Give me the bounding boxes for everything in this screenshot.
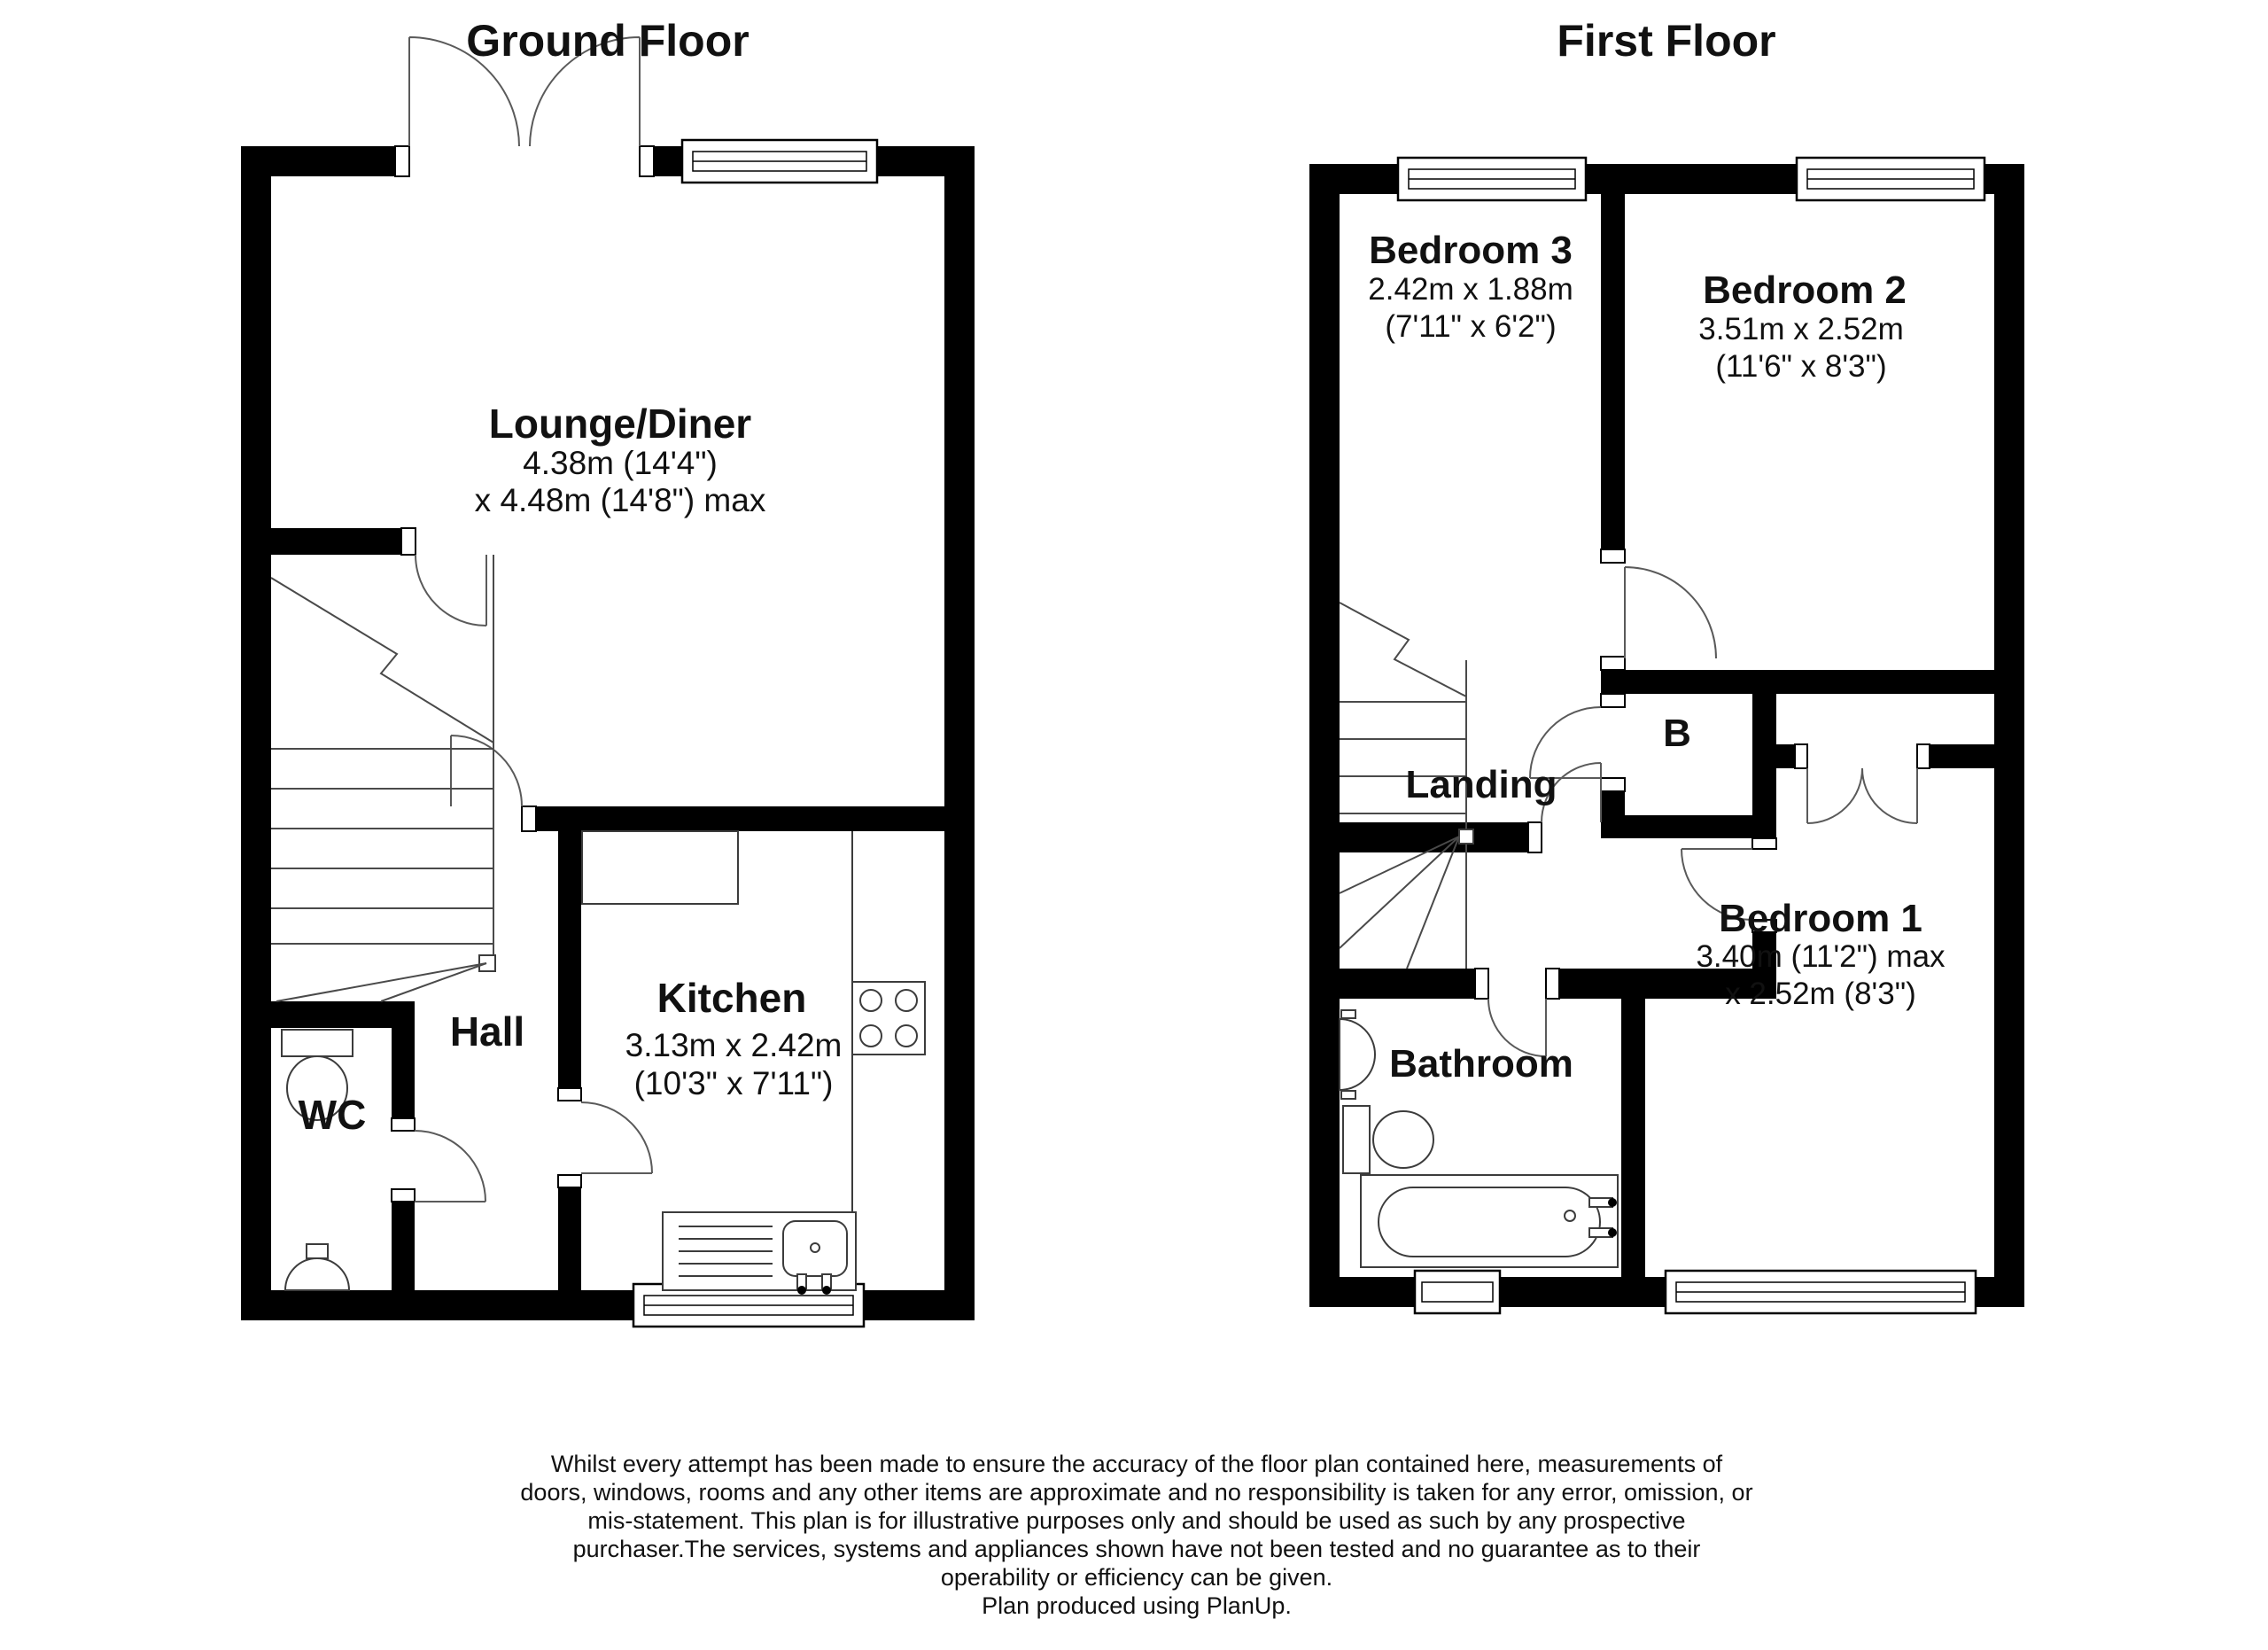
bathroom-basin-icon <box>1340 1010 1375 1099</box>
lounge-dim1: 4.38m (14'4") <box>523 445 718 482</box>
bedroom3-dim1: 2.42m x 1.88m <box>1368 272 1573 307</box>
lounge-label: Lounge/Diner <box>489 400 751 448</box>
kitchen-sink-icon <box>663 1212 856 1295</box>
wardrobe-double-door-icon <box>1807 768 1917 823</box>
lounge-dim2: x 4.48m (14'8") max <box>475 482 766 519</box>
kitchen-label: Kitchen <box>657 974 807 1022</box>
kitchen-dim1: 3.13m x 2.42m <box>625 1027 843 1064</box>
bedroom1-dim2: x 2.52m (8'3") <box>1725 977 1916 1012</box>
bedroom1-label: Bedroom 1 <box>1719 897 1922 941</box>
bedroom3-dim2: (7'11" x 6'2") <box>1385 309 1556 345</box>
bathroom-window-icon <box>1415 1271 1500 1313</box>
bathroom-bath-icon <box>1361 1175 1618 1267</box>
bedroom2-dim2: (11'6" x 8'3") <box>1715 349 1886 385</box>
kitchen-lounge-door-icon <box>451 735 522 806</box>
bedroom1-window-icon <box>1666 1271 1976 1313</box>
first-floor-title: First Floor <box>1557 15 1775 66</box>
kitchen-dim2: (10'3" x 7'11") <box>634 1065 834 1102</box>
bedroom2-window-icon <box>1797 158 1984 200</box>
wc-label: WC <box>299 1091 367 1139</box>
bedroom3-label: Bedroom 3 <box>1369 229 1573 273</box>
disclaimer-line: mis-statement. This plan is for illustra… <box>251 1506 2023 1535</box>
bedroom3-window-icon <box>1398 158 1586 200</box>
kitchen-unit-icon <box>582 831 852 1212</box>
landing-label: Landing <box>1405 763 1557 807</box>
floorplan-drawing <box>0 0 2268 1650</box>
disclaimer-text: Whilst every attempt has been made to en… <box>251 1450 2023 1620</box>
kitchen-hob-icon <box>852 982 925 1055</box>
bedroom2-label: Bedroom 2 <box>1703 269 1907 313</box>
disclaimer-line: Whilst every attempt has been made to en… <box>251 1450 2023 1478</box>
bedroom2-door-icon <box>1625 567 1716 658</box>
kitchen-hall-door-icon <box>581 1102 652 1173</box>
bedroom2-dim1: 3.51m x 2.52m <box>1698 312 1904 347</box>
ground-floor-title: Ground Floor <box>466 15 749 66</box>
disclaimer-line: purchaser.The services, systems and appl… <box>251 1535 2023 1563</box>
floorplan-page: Ground Floor First Floor Lounge/Diner 4.… <box>0 0 2268 1650</box>
wc-basin-icon <box>285 1244 349 1290</box>
bathroom-label: Bathroom <box>1389 1042 1573 1086</box>
hall-label: Hall <box>450 1008 524 1055</box>
cupboard-label: B <box>1663 712 1691 756</box>
wc-door-icon <box>415 1131 485 1202</box>
disclaimer-line: operability or efficiency can be given. <box>251 1563 2023 1592</box>
bathroom-toilet-icon <box>1343 1106 1433 1173</box>
lounge-door-icon <box>416 555 486 626</box>
disclaimer-line: Plan produced using PlanUp. <box>251 1592 2023 1620</box>
lounge-window-icon <box>682 140 877 183</box>
disclaimer-line: doors, windows, rooms and any other item… <box>251 1478 2023 1506</box>
bedroom1-dim1: 3.40m (11'2") max <box>1696 939 1945 975</box>
ground-floor-walls <box>241 146 975 1320</box>
